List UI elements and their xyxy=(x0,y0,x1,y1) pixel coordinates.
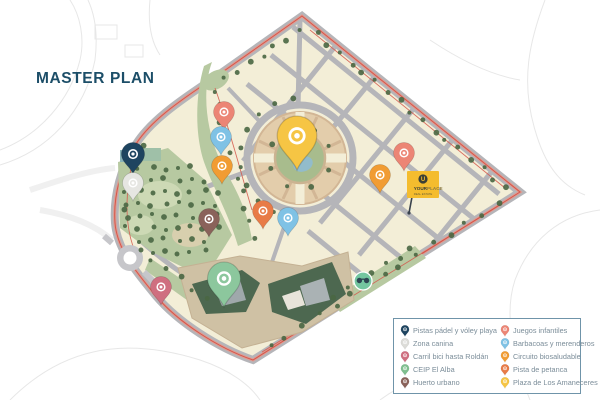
playground-pin-icon xyxy=(500,325,510,337)
legend-item-juegos: Juegos infantiles xyxy=(500,324,598,337)
legend-item-circuito: Circuito biosaludable xyxy=(500,350,598,363)
legend-item-barbacoas: Barbacoas y merenderos xyxy=(500,337,598,350)
legend-item-pistas-padel: Pistas pádel y vóley playa xyxy=(400,324,497,337)
school-pin-icon xyxy=(400,364,410,376)
legend-item-carril-bici: Carril bici hasta Roldán xyxy=(400,350,497,363)
flag-line2: PLACE xyxy=(427,186,443,191)
legend-box: Pistas pádel y vóley playa Zona canina C… xyxy=(393,318,581,394)
fitness-circuit-pin-icon xyxy=(500,351,510,363)
page-title: MASTER PLAN xyxy=(36,70,155,88)
viewpoint-icon[interactable] xyxy=(354,272,372,290)
flag-line1: YOUR xyxy=(414,186,428,191)
master-plan-page: U YOUR PLACE REAL ESTATE MASTER PLAN Pis… xyxy=(0,0,600,400)
bike-lane-pin-icon xyxy=(400,351,410,363)
petanque-pin-icon xyxy=(500,364,510,376)
dog-area-pin-icon xyxy=(400,338,410,350)
plaza-pin-icon xyxy=(500,377,510,389)
legend-column-right: Juegos infantiles Barbacoas y merenderos… xyxy=(500,324,598,389)
flag-tagline: REAL ESTATE xyxy=(414,192,433,196)
urban-garden-pin-icon xyxy=(400,377,410,389)
legend-item-zona-canina: Zona canina xyxy=(400,337,497,350)
legend-item-plaza: Plaza de Los Amaneceres xyxy=(500,376,598,389)
legend-item-petanca: Pista de petanca xyxy=(500,363,598,376)
legend-column-left: Pistas pádel y vóley playa Zona canina C… xyxy=(400,324,497,389)
legend-item-ceip: CEIP El Alba xyxy=(400,363,497,376)
svg-text:U: U xyxy=(421,177,425,183)
padel-pin-icon xyxy=(400,325,410,337)
bbq-pin-icon xyxy=(500,338,510,350)
legend-item-huerto: Huerto urbano xyxy=(400,376,497,389)
